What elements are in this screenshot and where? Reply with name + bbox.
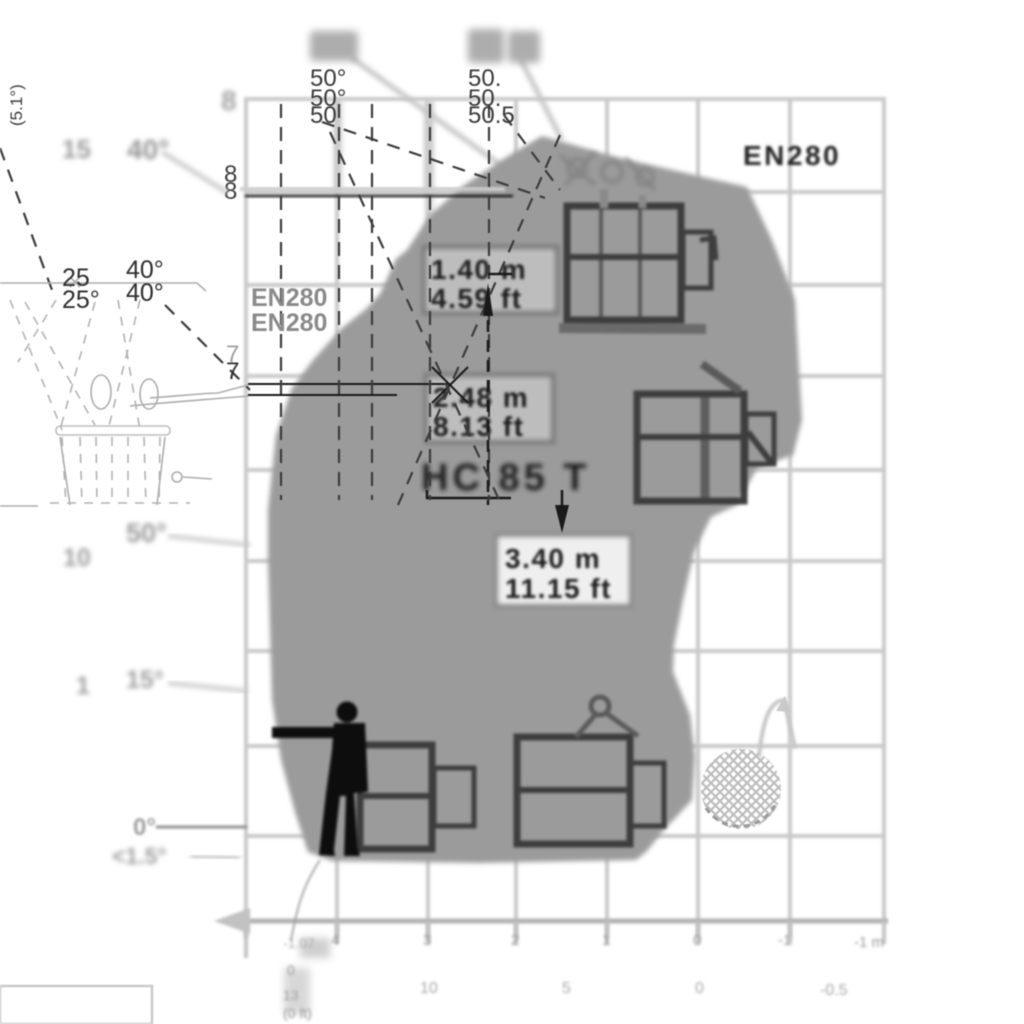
svg-text:4: 4	[331, 932, 339, 949]
svg-text:-0.5: -0.5	[820, 982, 848, 999]
svg-text:40°: 40°	[126, 279, 164, 307]
svg-text:1: 1	[76, 672, 90, 700]
svg-text:15°: 15°	[126, 666, 164, 694]
svg-text:50°: 50°	[126, 518, 167, 548]
svg-text:-1 m: -1 m	[854, 934, 884, 951]
svg-text:EN280: EN280	[251, 309, 327, 337]
svg-text:10: 10	[420, 980, 438, 997]
svg-text:1: 1	[602, 932, 610, 949]
svg-text:1.40 m: 1.40 m	[431, 254, 527, 285]
svg-text:0°: 0°	[133, 814, 156, 841]
svg-text:7: 7	[226, 341, 239, 368]
svg-text:HC 85 T: HC 85 T	[421, 457, 590, 499]
svg-text:-1: -1	[778, 932, 791, 949]
svg-text:<1.5°: <1.5°	[112, 843, 167, 869]
svg-text:8.13 ft: 8.13 ft	[433, 411, 524, 442]
svg-text:3: 3	[423, 932, 431, 949]
svg-text:2: 2	[511, 932, 519, 949]
svg-text:10: 10	[63, 544, 91, 572]
svg-text:15: 15	[62, 134, 91, 164]
svg-text:EN280: EN280	[251, 284, 327, 312]
svg-text:8: 8	[221, 85, 237, 116]
svg-text:11.15 ft: 11.15 ft	[505, 573, 612, 604]
svg-text:25°: 25°	[62, 286, 100, 314]
svg-text:3.40 m: 3.40 m	[505, 543, 601, 574]
svg-text:4.59 ft: 4.59 ft	[431, 283, 522, 314]
svg-text:40°: 40°	[127, 134, 169, 165]
svg-text:50: 50	[310, 102, 337, 129]
svg-text:5: 5	[562, 980, 571, 997]
svg-text:(5.1°): (5.1°)	[7, 84, 26, 126]
svg-text:EN280: EN280	[743, 140, 841, 171]
svg-text:0: 0	[693, 932, 701, 949]
svg-text:50.5: 50.5	[468, 102, 515, 129]
svg-text:0: 0	[695, 980, 704, 997]
